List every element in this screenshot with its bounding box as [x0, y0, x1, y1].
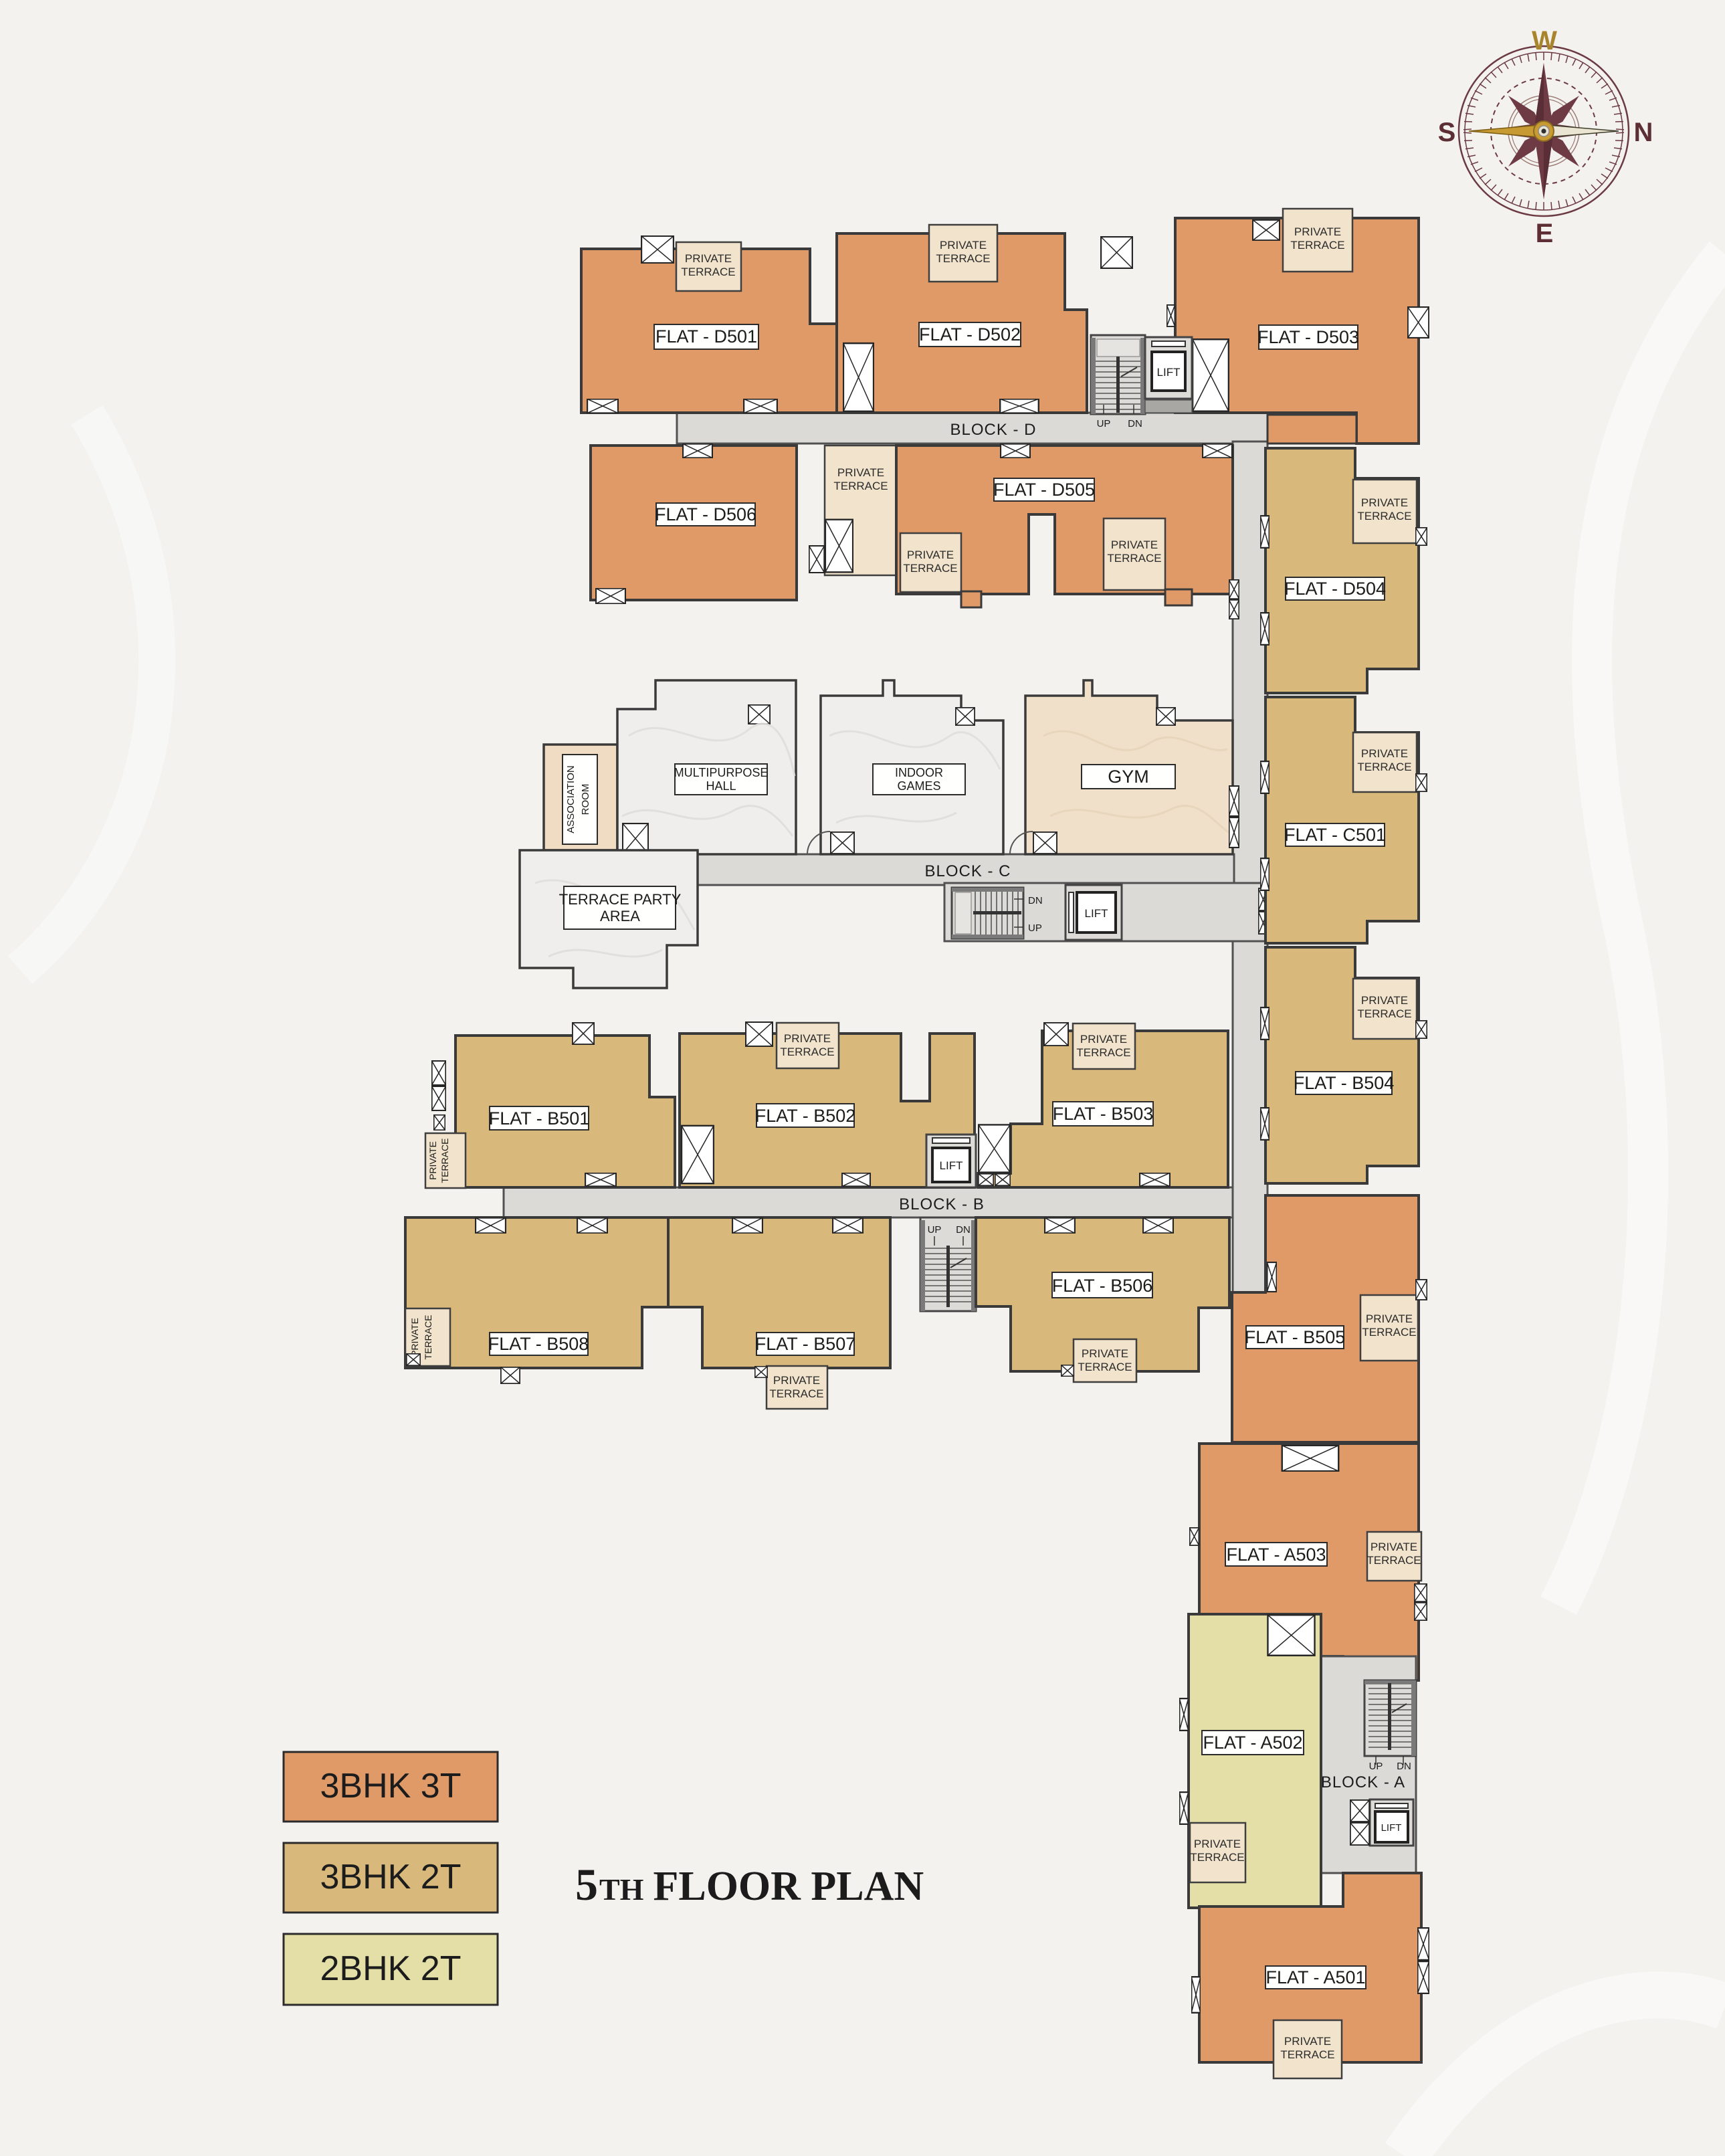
- svg-text:FLAT - D506: FLAT - D506: [655, 504, 756, 524]
- svg-text:PRIVATE: PRIVATE: [784, 1032, 831, 1045]
- svg-text:UP: UP: [1097, 418, 1111, 429]
- svg-text:PRIVATE: PRIVATE: [837, 466, 884, 479]
- svg-text:TERRACE: TERRACE: [423, 1315, 433, 1360]
- svg-text:TERRACE PARTY: TERRACE PARTY: [559, 891, 682, 908]
- svg-text:FLAT - C501: FLAT - C501: [1284, 825, 1386, 845]
- svg-text:TERRACE: TERRACE: [1357, 1007, 1411, 1020]
- svg-text:PRIVATE: PRIVATE: [1361, 496, 1408, 509]
- svg-text:FLAT - B501: FLAT - B501: [489, 1108, 590, 1129]
- svg-text:PRIVATE: PRIVATE: [1284, 2035, 1331, 2048]
- svg-text:N: N: [1634, 118, 1653, 147]
- svg-text:DN: DN: [956, 1224, 971, 1236]
- svg-text:DN: DN: [1028, 895, 1043, 906]
- svg-text:FLAT - B504: FLAT - B504: [1294, 1073, 1395, 1093]
- svg-text:FLAT - A501: FLAT - A501: [1265, 1967, 1365, 1987]
- svg-text:FLAT - A502: FLAT - A502: [1203, 1733, 1302, 1753]
- svg-text:PRIVATE: PRIVATE: [1080, 1033, 1127, 1046]
- svg-text:W: W: [1532, 26, 1557, 56]
- svg-text:DN: DN: [1397, 1761, 1411, 1772]
- svg-text:HALL: HALL: [706, 779, 736, 793]
- svg-text:FLAT - D503: FLAT - D503: [1257, 327, 1359, 347]
- svg-text:TERRACE: TERRACE: [1280, 2048, 1334, 2061]
- svg-text:TERRACE: TERRACE: [769, 1387, 823, 1400]
- svg-text:TERRACE: TERRACE: [1107, 552, 1161, 565]
- svg-text:FLAT - B503: FLAT - B503: [1053, 1104, 1154, 1124]
- svg-text:PRIVATE: PRIVATE: [1111, 538, 1158, 551]
- svg-text:AREA: AREA: [600, 908, 640, 924]
- svg-text:ROOM: ROOM: [580, 784, 591, 815]
- svg-text:PRIVATE: PRIVATE: [1361, 994, 1408, 1007]
- svg-text:ASSOCIATION: ASSOCIATION: [565, 765, 577, 833]
- svg-text:FLAT - B505: FLAT - B505: [1245, 1327, 1346, 1347]
- svg-text:FLAT - D504: FLAT - D504: [1284, 579, 1386, 599]
- svg-text:PRIVATE: PRIVATE: [1366, 1312, 1413, 1325]
- svg-text:TERRACE: TERRACE: [1357, 510, 1411, 522]
- svg-text:FLAT - A503: FLAT - A503: [1226, 1545, 1326, 1565]
- svg-text:PRIVATE: PRIVATE: [1294, 225, 1341, 238]
- svg-text:3BHK 2T: 3BHK 2T: [320, 1858, 462, 1896]
- svg-text:PRIVATE: PRIVATE: [685, 252, 732, 265]
- svg-text:3BHK 3T: 3BHK 3T: [320, 1767, 462, 1805]
- svg-text:TERRACE: TERRACE: [439, 1139, 450, 1183]
- svg-text:FLAT - D502: FLAT - D502: [919, 324, 1021, 345]
- svg-text:TERRACE: TERRACE: [936, 252, 990, 265]
- svg-text:PRIVATE: PRIVATE: [1371, 1541, 1417, 1553]
- svg-text:UP: UP: [1028, 922, 1042, 934]
- svg-text:FLAT - B508: FLAT - B508: [488, 1334, 589, 1354]
- svg-text:FLAT - B502: FLAT - B502: [755, 1106, 856, 1126]
- svg-text:LIFT: LIFT: [1157, 366, 1181, 379]
- svg-text:TERRACE: TERRACE: [1190, 1851, 1244, 1864]
- svg-text:TERRACE: TERRACE: [1290, 239, 1344, 252]
- svg-text:TERRACE: TERRACE: [1366, 1554, 1421, 1567]
- svg-text:LIFT: LIFT: [1381, 1822, 1402, 1834]
- svg-text:MULTIPURPOSE: MULTIPURPOSE: [674, 766, 769, 779]
- svg-text:FLAT - D505: FLAT - D505: [993, 480, 1095, 500]
- svg-text:UP: UP: [1369, 1761, 1383, 1772]
- svg-text:PRIVATE: PRIVATE: [1082, 1347, 1128, 1360]
- svg-text:LIFT: LIFT: [1085, 907, 1108, 920]
- svg-text:PRIVATE: PRIVATE: [1194, 1838, 1241, 1850]
- svg-text:FLAT - B507: FLAT - B507: [755, 1334, 856, 1354]
- svg-text:GAMES: GAMES: [897, 779, 940, 793]
- svg-text:PRIVATE: PRIVATE: [409, 1318, 420, 1357]
- svg-text:TERRACE: TERRACE: [903, 562, 957, 575]
- svg-text:TERRACE: TERRACE: [1076, 1046, 1130, 1059]
- svg-text:TERRACE: TERRACE: [780, 1046, 834, 1058]
- svg-text:UP: UP: [928, 1224, 942, 1236]
- svg-text:GYM: GYM: [1108, 767, 1149, 787]
- svg-text:TERRACE: TERRACE: [1362, 1326, 1416, 1339]
- svg-text:INDOOR: INDOOR: [895, 766, 943, 779]
- svg-text:PRIVATE: PRIVATE: [940, 239, 987, 252]
- svg-text:PRIVATE: PRIVATE: [427, 1141, 438, 1180]
- svg-text:S: S: [1438, 118, 1456, 147]
- svg-text:BLOCK - A: BLOCK - A: [1321, 1773, 1405, 1791]
- svg-text:PRIVATE: PRIVATE: [907, 549, 954, 561]
- svg-text:FLAT - B506: FLAT - B506: [1052, 1276, 1153, 1296]
- svg-text:TERRACE: TERRACE: [1357, 761, 1411, 773]
- svg-text:E: E: [1536, 219, 1554, 248]
- svg-text:BLOCK - B: BLOCK - B: [899, 1195, 985, 1213]
- svg-text:PRIVATE: PRIVATE: [773, 1374, 820, 1387]
- svg-text:BLOCK - D: BLOCK - D: [950, 421, 1036, 439]
- svg-text:BLOCK - C: BLOCK - C: [924, 862, 1011, 880]
- svg-text:FLAT - D501: FLAT - D501: [655, 326, 757, 347]
- svg-text:TERRACE: TERRACE: [681, 266, 735, 278]
- svg-text:LIFT: LIFT: [940, 1159, 963, 1172]
- svg-text:TERRACE: TERRACE: [833, 480, 888, 492]
- svg-text:2BHK 2T: 2BHK 2T: [320, 1949, 462, 1988]
- svg-text:TERRACE: TERRACE: [1078, 1361, 1132, 1373]
- svg-text:PRIVATE: PRIVATE: [1361, 747, 1408, 760]
- svg-text:DN: DN: [1128, 418, 1142, 429]
